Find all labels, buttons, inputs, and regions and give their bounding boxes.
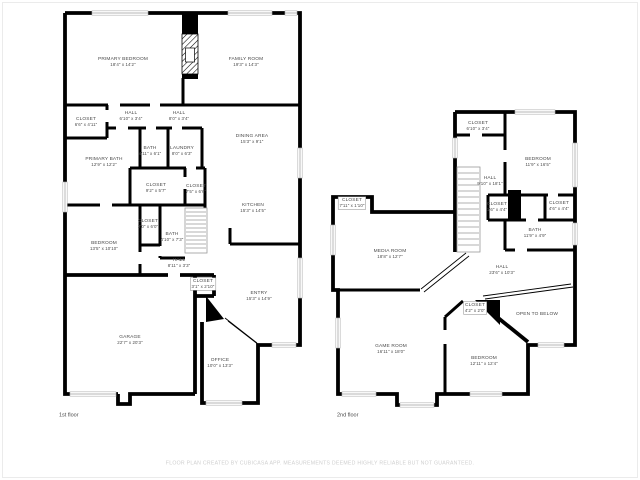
room-label: OPEN TO BELOW [516,311,558,317]
room-label: CLOSET4'2" x 2'0" [463,302,486,315]
room-label: PRIMARY BATH12'9" x 12'2" [85,156,122,168]
room-labels-layer: PRIMARY BEDROOM18'4" x 14'2"FAMILY ROOM1… [0,0,640,480]
room-label: OFFICE10'0" x 13'3" [207,357,232,369]
room-label: LAUNDRY8'0" x 6'3" [170,145,194,157]
room-label: BEDROOM13'5" x 10'10" [90,240,118,252]
room-label: CLOSET6'6" x 4'11" [75,116,98,128]
room-label: CLOSET1'6" x 4'4" [487,201,507,213]
room-label: BEDROOM11'9" x 16'5" [525,156,551,168]
room-label: BATH11'9" x 4'9" [524,227,547,239]
room-label: CLOSET2'0" x 6'0" [138,218,158,230]
room-label: DINING AREA15'3" x 9'1" [236,133,269,145]
room-label: GAME ROOM16'11" x 18'0" [375,343,407,355]
floor-label: 2nd floor [337,412,358,418]
room-label: GARAGE22'7" x 20'3" [117,334,142,346]
room-label: ENTRY15'3" x 14'9" [246,290,271,302]
room-label: BATH4'10" x 7'3" [161,231,184,243]
room-label: CLOSET7'11" x 1'10" [338,197,366,210]
room-label: PRIMARY BEDROOM18'4" x 14'2" [98,56,148,68]
room-label: HALL23'6" x 10'3" [489,264,514,276]
room-label: FAMILY ROOM19'3" x 14'3" [229,56,264,68]
room-label: HALL9'10" x 18'1" [477,175,502,187]
room-label: HALL6'10" x 3'4" [120,110,143,122]
room-label: BEDROOM12'11" x 12'4" [470,355,498,367]
room-label: CLOSET4'6" x 4'4" [549,200,569,212]
room-label: CLOSET7'5" x 6'6" [186,183,206,195]
room-label: CLOSET9'2" x 5'7" [146,182,166,194]
floor-plan-page: PRIMARY BEDROOM18'4" x 14'2"FAMILY ROOM1… [0,0,640,480]
room-label: KITCHEN15'3" x 14'5" [240,202,265,214]
room-label: MEDIA ROOM18'8" x 12'7" [374,248,407,260]
disclaimer-text: FLOOR PLAN CREATED BY CUBICASA APP. MEAS… [166,460,474,466]
room-label: HALL8'0" x 3'4" [169,110,189,122]
room-label: CLOSET6'10" x 3'4" [467,120,490,132]
room-label: BATH4'11" x 6'1" [139,145,162,157]
room-label: CLOSET3'1" x 2'10" [190,278,216,291]
floor-label: 1st floor [59,412,79,418]
room-label: HALL8'11" x 3'3" [168,257,191,269]
